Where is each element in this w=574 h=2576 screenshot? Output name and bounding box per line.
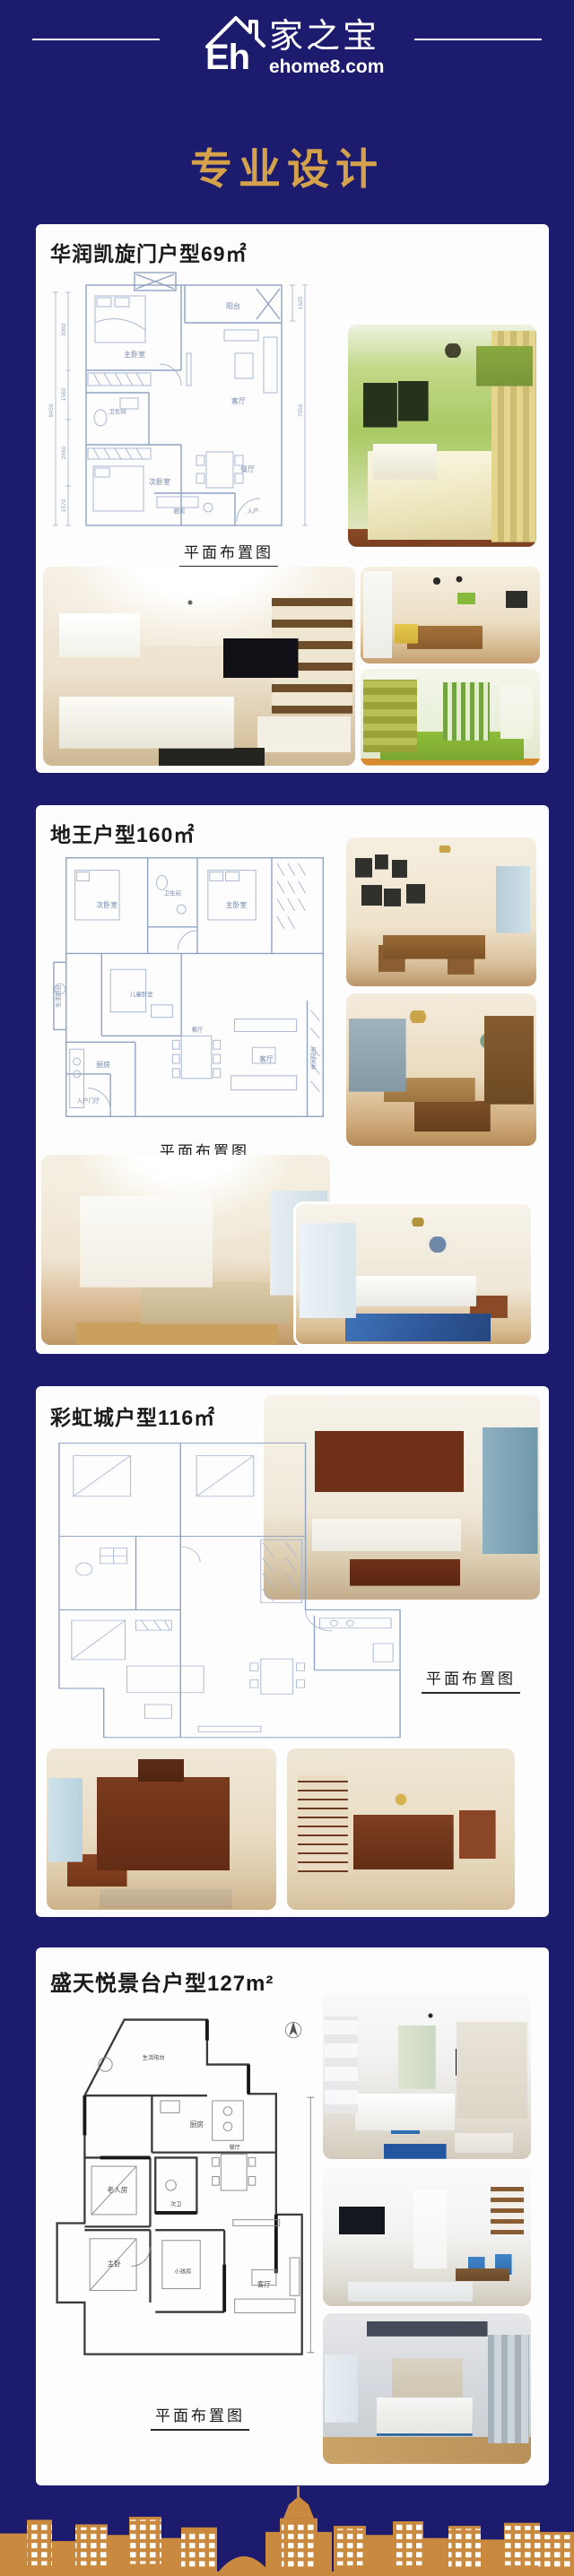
plan-caption: 平面布置图 [179, 540, 278, 568]
plan-caption: 平面布置图 [422, 1666, 520, 1694]
promo-page: Eh 家之宝 ehome8.com 专业设计 华润凯旋门户型69㎡ 9450 3… [0, 0, 574, 2576]
brand-domain: ehome8.com [269, 57, 384, 76]
gallery-wall-dining-photo [346, 837, 536, 986]
cream-living-room-photo [41, 1155, 330, 1345]
svg-text:1620: 1620 [298, 296, 304, 309]
svg-text:餐厅: 餐厅 [229, 2143, 240, 2151]
header-divider-left [32, 39, 160, 40]
svg-text:厨房: 厨房 [190, 2120, 204, 2129]
svg-text:厨房: 厨房 [96, 1060, 110, 1069]
header-divider-right [414, 39, 542, 40]
svg-text:餐厅: 餐厅 [240, 465, 255, 473]
section-title: 地王户型160㎡ [50, 818, 195, 848]
page-title: 专业设计 [0, 134, 574, 196]
blue-rug-lounge-photo [293, 1201, 534, 1347]
svg-text:次卧室: 次卧室 [149, 477, 170, 486]
housing-card-diwang-160: 地王户型160㎡ [36, 805, 549, 1354]
brand-initials: Eh [205, 39, 249, 75]
svg-text:休闲阳台: 休闲阳台 [309, 1046, 317, 1070]
city-skyline-silhouette [0, 2486, 574, 2576]
blue-grey-bedroom-photo [323, 2313, 531, 2464]
svg-text:厨房: 厨房 [174, 507, 186, 515]
svg-text:1570: 1570 [61, 499, 67, 512]
svg-text:生活阳台: 生活阳台 [143, 2053, 165, 2061]
svg-text:阳台: 阳台 [226, 301, 240, 310]
svg-text:生活阳台: 生活阳台 [54, 984, 62, 1008]
brand-name: 家之宝 [269, 20, 379, 54]
floor-plan-127: 生活阳台 厨房 老人房 次卫 餐厅 主卧 小孩房 客厅 [48, 2010, 317, 2369]
modern-blue-living-photo [323, 1992, 531, 2159]
wood-kitchen-dining-photo [346, 993, 536, 1146]
svg-text:卫生间: 卫生间 [164, 889, 181, 897]
svg-text:9450: 9450 [48, 403, 55, 417]
svg-text:餐厅: 餐厅 [192, 1025, 204, 1033]
svg-text:客厅: 客厅 [259, 1054, 274, 1063]
section-title: 华润凯旋门户型69㎡ [50, 237, 248, 267]
redwood-tv-room-photo [47, 1748, 276, 1910]
svg-text:老人房: 老人房 [107, 2185, 127, 2194]
plan-caption: 平面布置图 [151, 2403, 249, 2431]
svg-text:儿童卧室: 儿童卧室 [130, 990, 153, 998]
floor-plan-160: 次卧室 卫生间 主卧室 儿童卧室 生活阳台 厨房 餐厅 客厅 入户门厅 休闲阳台 [48, 845, 344, 1132]
svg-text:卫生间: 卫生间 [109, 407, 126, 415]
svg-text:主卧室: 主卧室 [124, 350, 145, 359]
svg-text:7950: 7950 [298, 403, 304, 417]
svg-text:次卧室: 次卧室 [96, 900, 117, 909]
svg-text:小孩房: 小孩房 [175, 2267, 192, 2275]
wood-dining-area-photo [361, 567, 540, 664]
svg-text:客厅: 客厅 [257, 2280, 272, 2289]
svg-text:客厅: 客厅 [231, 396, 246, 405]
housing-card-caihong-116: 彩虹城户型116㎡ [36, 1386, 549, 1917]
blue-chair-dining-hall-photo [323, 2166, 531, 2306]
floor-plan-69: 9450 3080 1560 2460 1570 1620 7950 [48, 267, 348, 534]
svg-text:1560: 1560 [61, 387, 67, 401]
housing-card-huarun-69: 华润凯旋门户型69㎡ 9450 3080 1560 2460 1570 1620… [36, 224, 549, 773]
svg-text:2460: 2460 [61, 446, 67, 459]
svg-text:入户: 入户 [248, 507, 259, 515]
svg-text:3080: 3080 [61, 323, 67, 336]
section-title: 彩虹城户型116㎡ [50, 1401, 215, 1431]
floor-plan-116 [47, 1435, 407, 1743]
brand-logo: Eh 家之宝 ehome8.com [204, 5, 393, 86]
green-study-room-photo [361, 669, 540, 766]
section-title: 盛天悦景台户型127m² [50, 1965, 274, 1997]
housing-card-shengtian-127: 盛天悦景台户型127m² [36, 1947, 549, 2485]
redwood-dining-room-photo [287, 1748, 515, 1910]
beige-living-room-photo [43, 567, 355, 766]
svg-text:主卧室: 主卧室 [226, 900, 248, 909]
green-country-bedroom-photo [348, 325, 536, 547]
svg-text:主卧: 主卧 [107, 2259, 121, 2268]
svg-text:入户门厅: 入户门厅 [77, 1096, 100, 1104]
svg-text:次卫: 次卫 [170, 2199, 182, 2207]
